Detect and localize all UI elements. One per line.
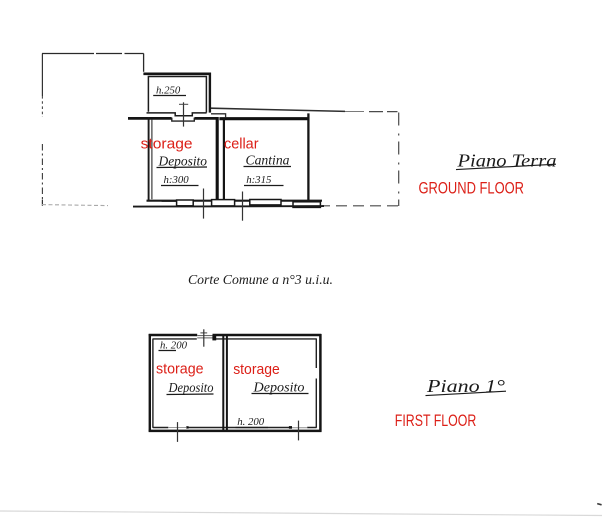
svg-text:h. 200: h. 200 — [237, 416, 265, 428]
svg-text:storage: storage — [141, 135, 193, 152]
svg-text:h.250: h.250 — [156, 84, 181, 96]
svg-text:storage: storage — [156, 361, 204, 378]
svg-text:h:315: h:315 — [246, 174, 272, 186]
svg-text:storage: storage — [233, 361, 280, 378]
svg-text:h:300: h:300 — [164, 174, 190, 186]
svg-text:Corte Comune a n°3 u.i.u.: Corte Comune a n°3 u.i.u. — [188, 273, 333, 288]
svg-text:GROUND FLOOR: GROUND FLOOR — [419, 180, 525, 198]
svg-text:FIRST FLOOR: FIRST FLOOR — [395, 412, 477, 430]
svg-text:h. 200: h. 200 — [160, 340, 188, 352]
svg-text:cellar: cellar — [224, 135, 259, 152]
